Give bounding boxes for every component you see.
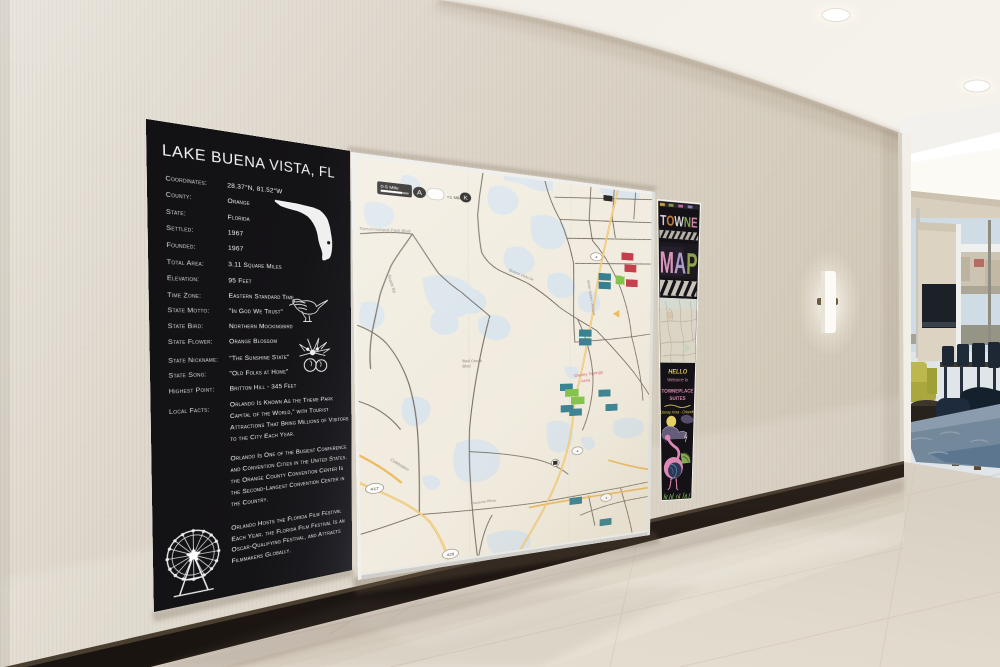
svg-text:Welcome to: Welcome to	[667, 377, 688, 383]
svg-text:HELLO: HELLO	[668, 368, 687, 376]
svg-text:Disney Area - Orlando: Disney Area - Orlando	[660, 409, 695, 414]
svg-text:TOWNEPLACE: TOWNEPLACE	[661, 388, 693, 394]
svg-text:TOWNE: TOWNE	[660, 212, 698, 231]
svg-text:SUITES: SUITES	[669, 396, 685, 402]
svg-text:MAP: MAP	[659, 245, 697, 281]
